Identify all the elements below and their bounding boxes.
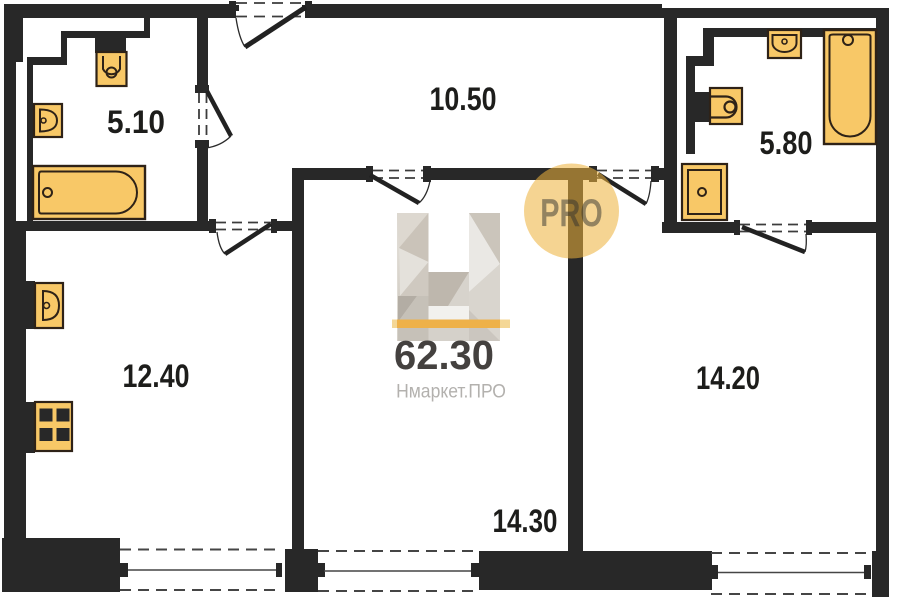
svg-text:14.20: 14.20 [696, 360, 760, 396]
svg-text:14.30: 14.30 [493, 503, 558, 539]
svg-text:5.80: 5.80 [760, 125, 813, 161]
svg-text:12.40: 12.40 [123, 358, 190, 394]
svg-text:5.10: 5.10 [107, 104, 165, 140]
svg-text:Нмаркет.ПРО: Нмаркет.ПРО [396, 380, 506, 402]
svg-text:10.50: 10.50 [430, 81, 497, 117]
svg-text:PRO: PRO [540, 192, 603, 235]
svg-text:62.30: 62.30 [394, 332, 494, 378]
